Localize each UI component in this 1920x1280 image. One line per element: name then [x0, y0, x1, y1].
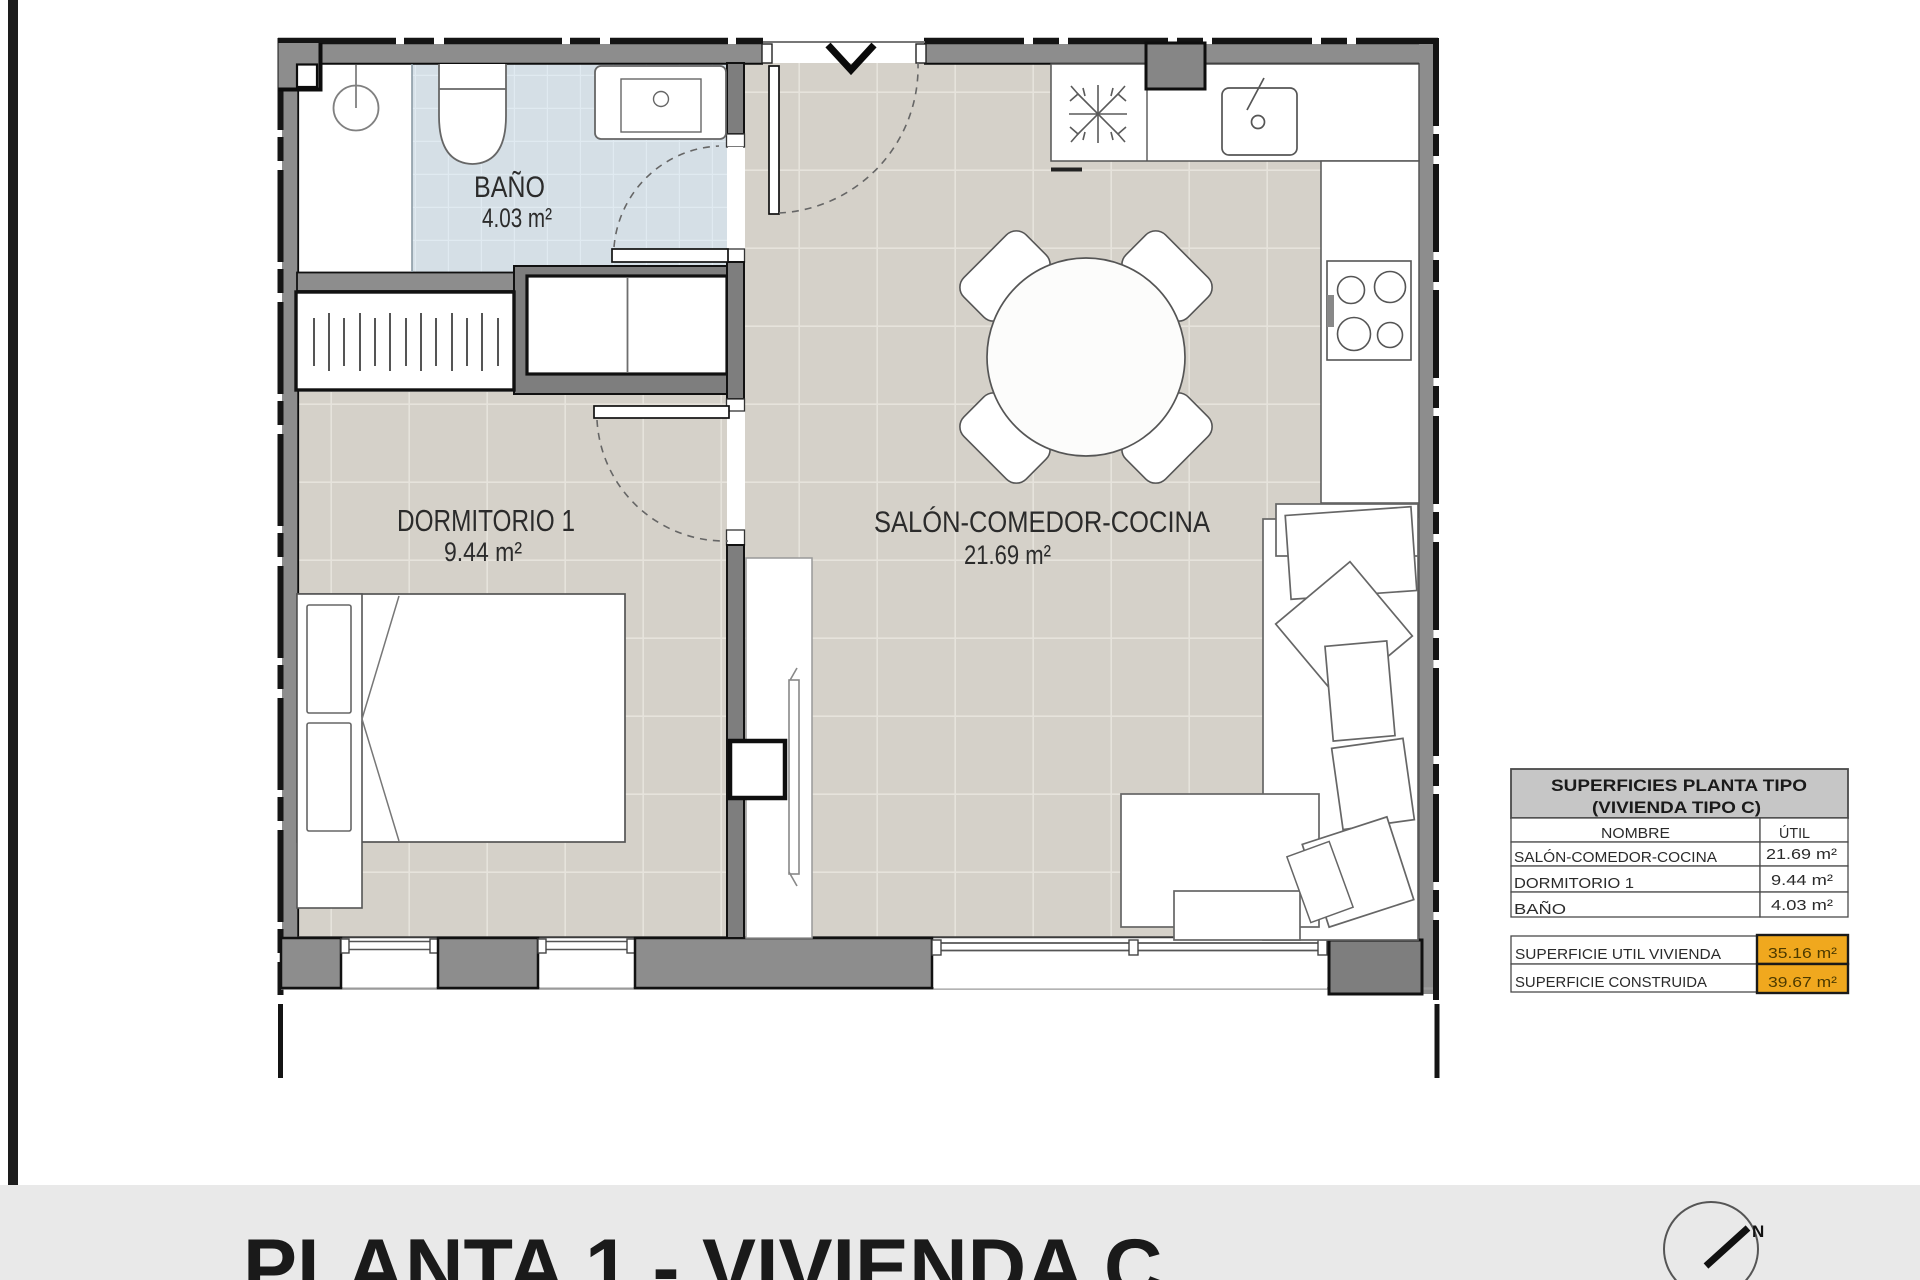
svg-text:DORMITORIO 1: DORMITORIO 1	[1514, 875, 1634, 892]
svg-text:9.44 m²: 9.44 m²	[444, 537, 522, 567]
svg-text:35.16 m²: 35.16 m²	[1768, 945, 1837, 962]
svg-text:SALÓN-COMEDOR-COCINA: SALÓN-COMEDOR-COCINA	[1514, 849, 1717, 866]
svg-text:ÚTIL: ÚTIL	[1779, 825, 1810, 842]
svg-text:39.67 m²: 39.67 m²	[1768, 974, 1837, 991]
svg-text:SALÓN-COMEDOR-COCINA: SALÓN-COMEDOR-COCINA	[874, 506, 1210, 539]
svg-text:(VIVIENDA TIPO C): (VIVIENDA TIPO C)	[1592, 798, 1761, 817]
svg-text:SUPERFICIES PLANTA TIPO: SUPERFICIES PLANTA TIPO	[1551, 776, 1807, 795]
svg-text:4.03 m²: 4.03 m²	[1771, 897, 1833, 914]
svg-text:4.03 m²: 4.03 m²	[482, 203, 552, 233]
svg-text:21.69 m²: 21.69 m²	[964, 540, 1051, 570]
svg-text:BAÑO: BAÑO	[1514, 901, 1566, 918]
svg-text:9.44 m²: 9.44 m²	[1771, 872, 1833, 889]
svg-text:PLANTA 1 - VIVIENDA C: PLANTA 1 - VIVIENDA C	[243, 1223, 1163, 1280]
svg-text:N: N	[1752, 1222, 1764, 1241]
svg-text:21.69 m²: 21.69 m²	[1766, 846, 1837, 863]
svg-text:SUPERFICIE CONSTRUIDA: SUPERFICIE CONSTRUIDA	[1515, 974, 1707, 991]
svg-text:NOMBRE: NOMBRE	[1601, 825, 1670, 842]
svg-text:DORMITORIO 1: DORMITORIO 1	[397, 503, 575, 538]
svg-text:BAÑO: BAÑO	[474, 170, 545, 204]
svg-text:SUPERFICIE UTIL VIVIENDA: SUPERFICIE UTIL VIVIENDA	[1515, 946, 1721, 963]
